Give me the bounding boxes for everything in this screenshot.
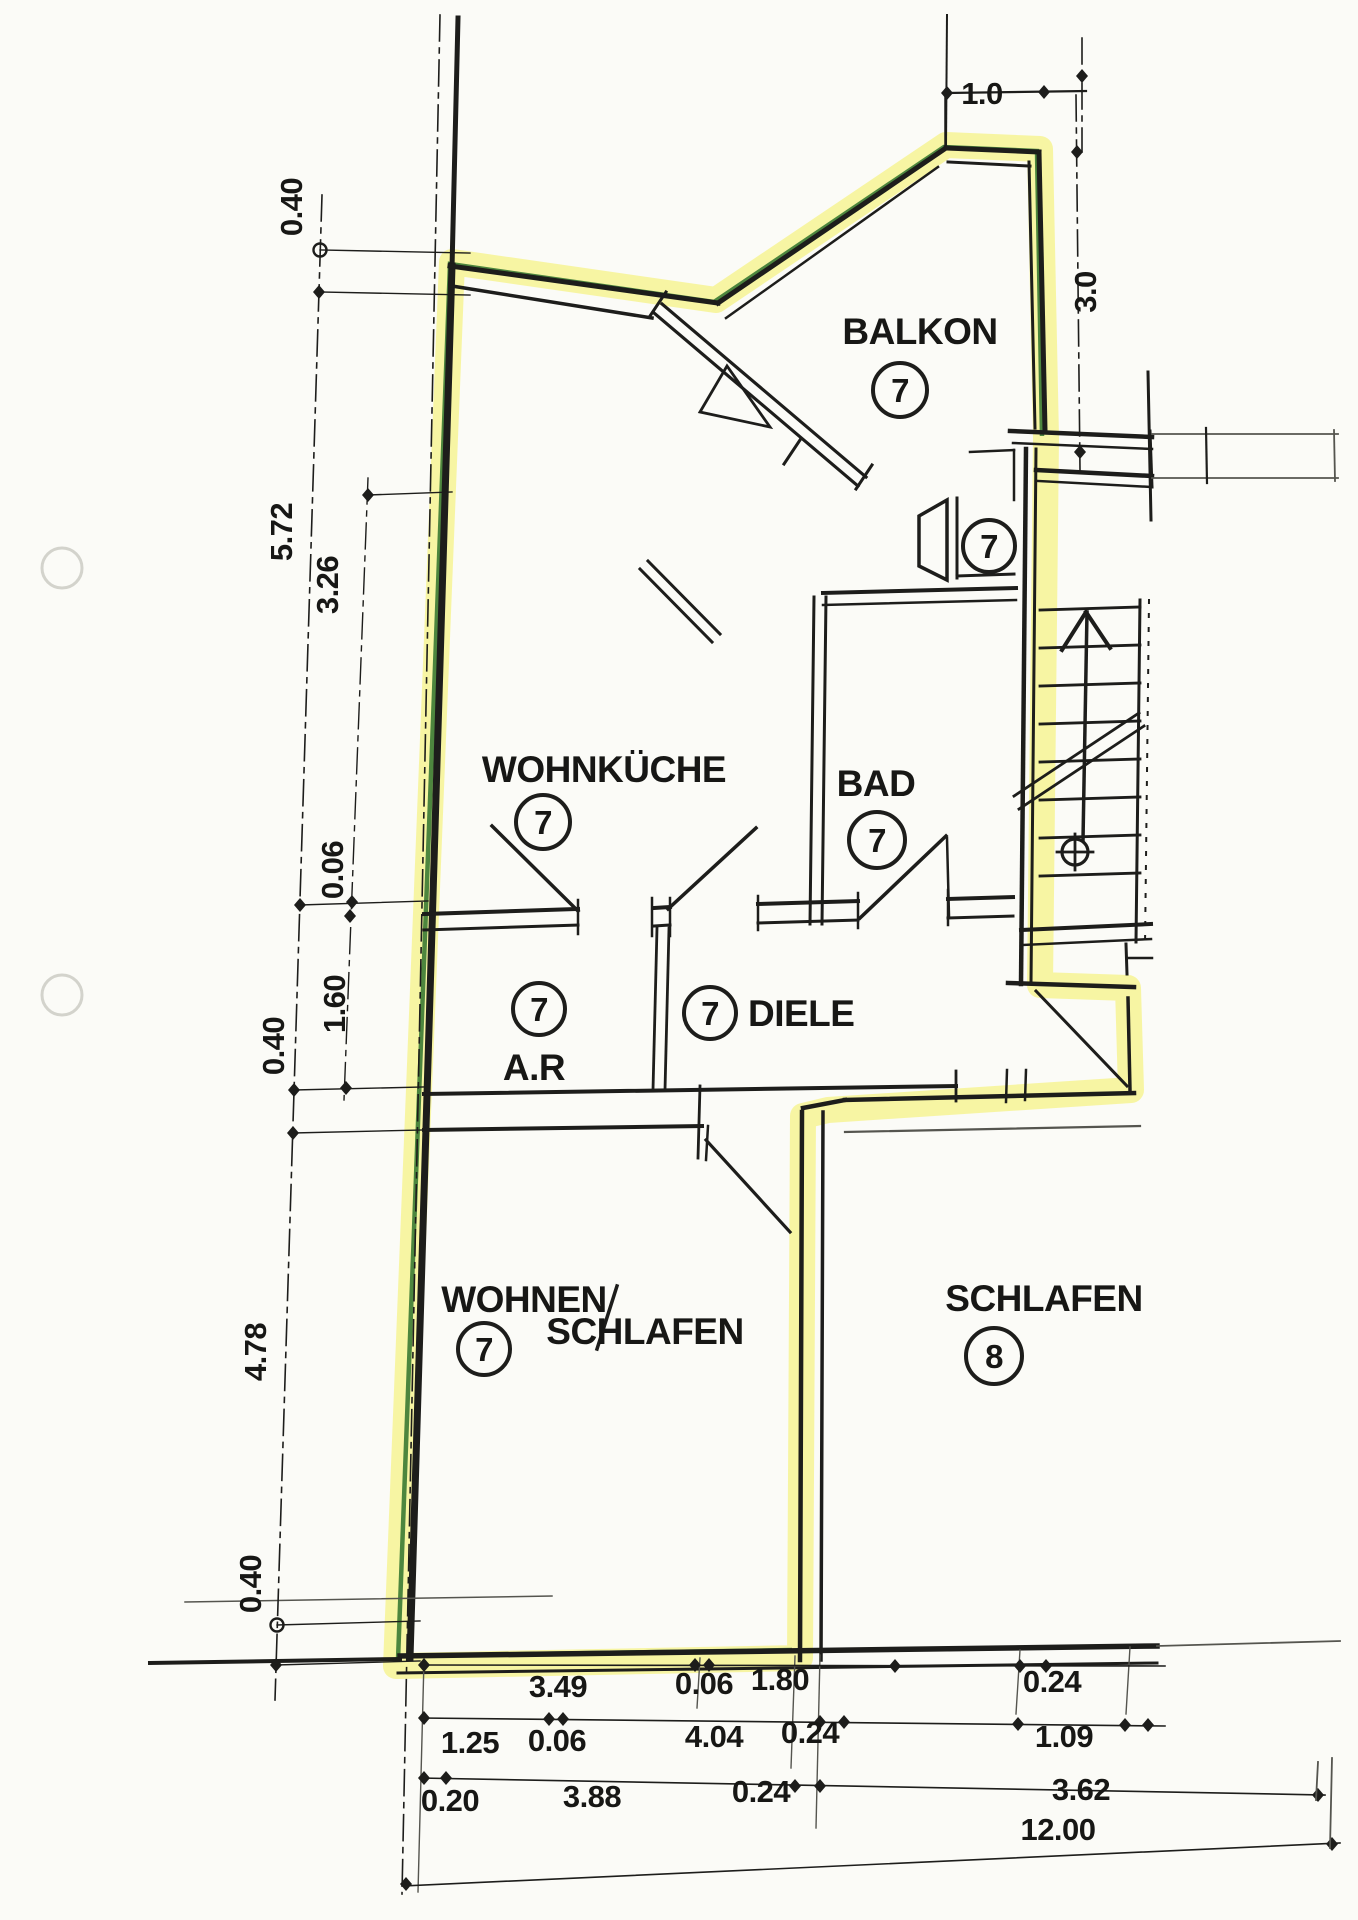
- dim-bottom: 1.80: [751, 1662, 809, 1697]
- balcony-door: [650, 292, 872, 489]
- room-label-balkon: BALKON 7: [842, 311, 997, 417]
- room-label-schlafen-8: SCHLAFEN 8: [945, 1278, 1142, 1384]
- dim-bottom: 0.06: [528, 1723, 587, 1758]
- room-name: BALKON: [842, 311, 997, 352]
- dim-bottom: 0.24: [1023, 1664, 1083, 1699]
- dim-bottom: 0.20: [421, 1783, 479, 1818]
- unit-badge-number: 7: [868, 822, 886, 859]
- room-label-wohnen-schlafen: WOHNEN SCHLAFEN 7: [441, 1279, 744, 1375]
- floorplan-drawing: 1.0 3.0 0.40 5.72 0.40 4.78 0.40 3.26 0.…: [0, 0, 1358, 1920]
- dim-left: 0.40: [274, 178, 309, 236]
- dim-bottom: 1.09: [1035, 1719, 1094, 1754]
- dim-right: 3.0: [1068, 271, 1103, 313]
- wohnen-door: [706, 1140, 790, 1232]
- room-name-2: SCHLAFEN: [546, 1311, 743, 1352]
- walls: [150, 148, 1340, 1673]
- dim-left: 0.40: [256, 1017, 291, 1075]
- dim-bottom: 0.24: [732, 1774, 792, 1809]
- unit-badge-number: 7: [530, 991, 548, 1028]
- dim-left-inner: 1.60: [317, 975, 352, 1033]
- hole-punch-marks: [42, 548, 82, 1015]
- dim-bottom: 1.25: [441, 1725, 500, 1760]
- room-name: BAD: [837, 763, 916, 804]
- dim-left: 4.78: [238, 1323, 273, 1382]
- room-name: SCHLAFEN: [945, 1278, 1142, 1319]
- unit-badge-number: 8: [985, 1338, 1003, 1375]
- scanned-floorplan-page: 1.0 3.0 0.40 5.72 0.40 4.78 0.40 3.26 0.…: [0, 0, 1358, 1920]
- entry-door-symbol: [919, 500, 947, 580]
- diele-kitchen-door: [668, 828, 756, 909]
- room-label-wohnkueche: WOHNKÜCHE 7: [482, 749, 726, 849]
- dim-bottom: 0.06: [675, 1666, 734, 1701]
- dim-bottom: 0.24: [781, 1715, 841, 1750]
- dim-bottom: 4.04: [685, 1719, 745, 1754]
- unit-badge-number: 7: [534, 804, 552, 841]
- entry-unit-badge: 7: [963, 520, 1015, 572]
- unit-badge-number: 7: [980, 528, 998, 565]
- unit-badge-number: 7: [475, 1331, 493, 1368]
- dim-bottom: 3.88: [563, 1779, 622, 1814]
- unit-badge-number: 7: [891, 372, 909, 409]
- room-name: A.R: [503, 1047, 565, 1088]
- dim-left-inner: 3.26: [310, 556, 345, 615]
- dim-bottom: 3.62: [1052, 1772, 1110, 1807]
- room-name: WOHNKÜCHE: [482, 749, 726, 790]
- stair-newel-symbol: [1057, 834, 1093, 870]
- dim-left: 5.72: [264, 503, 299, 561]
- dim-bottom: 3.49: [529, 1669, 588, 1704]
- unit-badge-number: 7: [701, 995, 719, 1032]
- dim-top: 1.0: [961, 76, 1003, 111]
- dim-left-inner: 0.06: [315, 841, 350, 900]
- dim-left: 0.40: [233, 1555, 268, 1613]
- room-name: DIELE: [748, 993, 854, 1034]
- room-label-bad: BAD 7: [837, 763, 916, 868]
- dim-total: 12.00: [1020, 1812, 1095, 1847]
- room-label-diele: 7 DIELE: [684, 987, 854, 1039]
- room-label-ar: 7 A.R: [503, 983, 565, 1088]
